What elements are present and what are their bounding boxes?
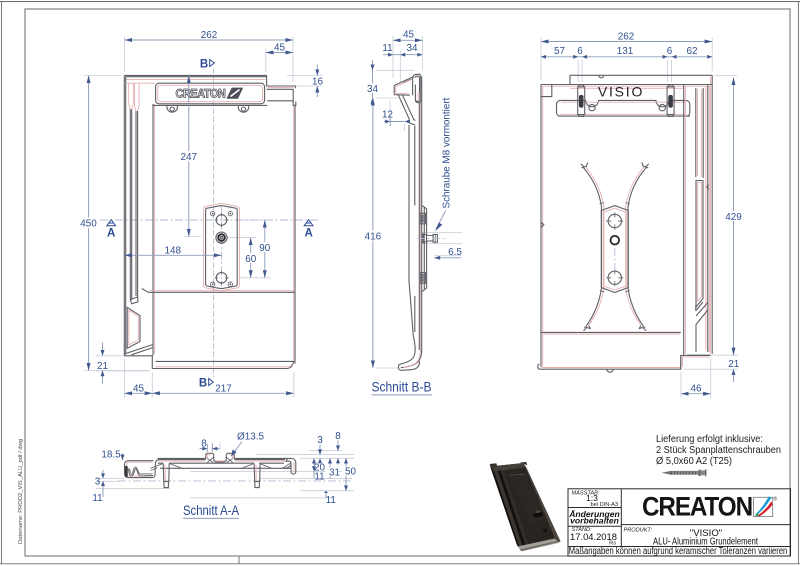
svg-text:6.5: 6.5 xyxy=(448,247,462,258)
svg-text:Schraube M8 vormontiert: Schraube M8 vormontiert xyxy=(442,97,453,208)
svg-text:A: A xyxy=(304,228,312,240)
svg-text:11: 11 xyxy=(382,43,393,54)
svg-text:2 Stück Spanplattenschrauben: 2 Stück Spanplattenschrauben xyxy=(656,445,781,456)
svg-text:131: 131 xyxy=(617,46,634,57)
svg-text:Ø13.5: Ø13.5 xyxy=(237,432,264,443)
svg-text:6: 6 xyxy=(667,46,673,57)
svg-text:217: 217 xyxy=(215,383,231,394)
svg-text:429: 429 xyxy=(725,212,742,223)
svg-text:®: ® xyxy=(774,496,778,503)
svg-text:247: 247 xyxy=(181,152,197,163)
svg-text:34: 34 xyxy=(367,84,378,95)
svg-text:11: 11 xyxy=(326,495,337,506)
svg-text:bei DIN-A3: bei DIN-A3 xyxy=(591,502,618,508)
svg-text:45: 45 xyxy=(133,383,144,394)
svg-text:CREATON: CREATON xyxy=(642,492,752,522)
svg-text:60: 60 xyxy=(245,254,256,265)
svg-text:vorbehalten: vorbehalten xyxy=(570,516,619,526)
svg-text:Schnitt B-B: Schnitt B-B xyxy=(372,379,432,395)
svg-text:45: 45 xyxy=(403,30,414,41)
svg-text:90: 90 xyxy=(259,243,270,254)
svg-text:62: 62 xyxy=(687,46,698,57)
svg-text:11: 11 xyxy=(314,471,325,482)
svg-text:18.5: 18.5 xyxy=(101,450,121,461)
svg-text:8: 8 xyxy=(201,438,207,449)
svg-text:31: 31 xyxy=(329,468,340,479)
svg-text:8: 8 xyxy=(335,431,341,442)
svg-text:46: 46 xyxy=(691,384,702,395)
svg-text:Dateiname: PROD2_VIS_ALU_pdf: Dateiname: PROD2_VIS_ALU_pdf / dwg xyxy=(18,439,24,544)
svg-text:3: 3 xyxy=(95,476,101,487)
svg-text:21: 21 xyxy=(728,359,739,370)
svg-text:3: 3 xyxy=(317,435,323,446)
svg-text:50: 50 xyxy=(345,467,356,478)
svg-text:148: 148 xyxy=(165,245,182,256)
svg-text:6: 6 xyxy=(577,46,583,57)
svg-text:VISIO: VISIO xyxy=(598,83,644,99)
svg-text:CREATON: CREATON xyxy=(176,88,226,100)
svg-text:Maßangaben können aufgrund ker: Maßangaben können aufgrund keramischer T… xyxy=(569,546,788,557)
svg-text:21: 21 xyxy=(97,361,108,372)
svg-text:Schnitt A-A: Schnitt A-A xyxy=(183,502,240,518)
svg-text:B: B xyxy=(199,378,207,390)
svg-text:45: 45 xyxy=(274,43,285,54)
svg-text:B: B xyxy=(200,59,208,71)
svg-text:Lieferung erfolgt inklusive:: Lieferung erfolgt inklusive: xyxy=(656,434,763,445)
svg-text:450: 450 xyxy=(80,219,97,230)
svg-text:262: 262 xyxy=(201,30,217,41)
svg-text:11: 11 xyxy=(92,493,103,504)
svg-text:PRODUKT:: PRODUKT: xyxy=(624,527,653,533)
svg-text:262: 262 xyxy=(618,32,634,43)
svg-text:16: 16 xyxy=(312,76,323,87)
svg-text:12: 12 xyxy=(382,110,393,121)
svg-text:A: A xyxy=(107,228,115,240)
svg-text:Ø 5,0x60 A2 (T25): Ø 5,0x60 A2 (T25) xyxy=(656,456,732,467)
svg-text:416: 416 xyxy=(365,231,382,242)
svg-text:57: 57 xyxy=(554,46,565,57)
svg-text:34: 34 xyxy=(407,43,418,54)
